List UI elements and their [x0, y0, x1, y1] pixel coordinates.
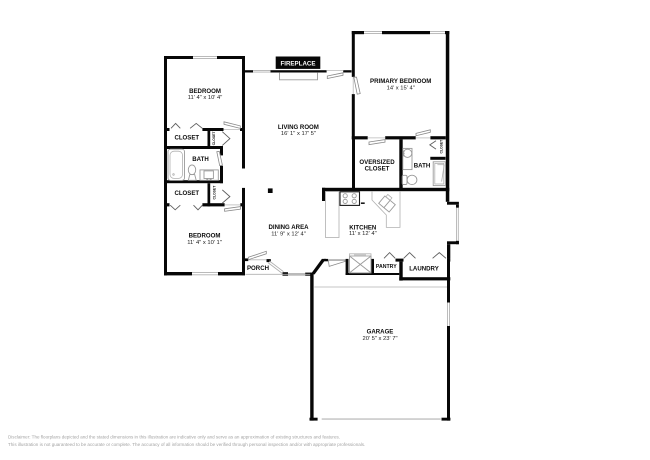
- svg-text:Disclaimer: The floorplans dep: Disclaimer: The floorplans depicted and …: [8, 435, 340, 440]
- svg-text:FIREPLACE: FIREPLACE: [280, 61, 315, 68]
- svg-text:BEDROOM: BEDROOM: [189, 233, 221, 240]
- svg-text:CLOSET: CLOSET: [212, 131, 216, 146]
- svg-text:PORCH: PORCH: [247, 265, 269, 272]
- svg-text:CLOSET: CLOSET: [174, 190, 199, 197]
- svg-text:CLOSET: CLOSET: [440, 139, 444, 154]
- svg-text:LAUNDRY: LAUNDRY: [409, 266, 439, 273]
- svg-text:GARAGE: GARAGE: [367, 329, 394, 336]
- svg-text:LIVING ROOM: LIVING ROOM: [278, 124, 319, 131]
- svg-text:CLOSET: CLOSET: [212, 185, 216, 200]
- svg-text:BEDROOM: BEDROOM: [189, 88, 221, 95]
- svg-text:11' 4" x 10' 1": 11' 4" x 10' 1": [187, 240, 222, 246]
- svg-text:This illustration is not guara: This illustration is not guaranteed to b…: [8, 442, 365, 447]
- svg-text:CLOSET: CLOSET: [174, 135, 199, 142]
- svg-text:11' 4" x 10' 4": 11' 4" x 10' 4": [188, 95, 223, 101]
- svg-text:20' 5" x 23' 7": 20' 5" x 23' 7": [362, 336, 397, 342]
- svg-text:PANTRY: PANTRY: [376, 264, 397, 270]
- svg-text:BATH: BATH: [192, 156, 208, 163]
- svg-text:DINING AREA: DINING AREA: [268, 224, 309, 231]
- svg-text:11' x 12' 4": 11' x 12' 4": [349, 231, 377, 237]
- svg-text:16' 1" x 17' 5": 16' 1" x 17' 5": [281, 131, 316, 137]
- svg-text:14' x 15' 4": 14' x 15' 4": [387, 85, 415, 91]
- svg-text:PRIMARY BEDROOM: PRIMARY BEDROOM: [370, 78, 431, 85]
- svg-text:11' 9" x 12' 4": 11' 9" x 12' 4": [271, 232, 306, 238]
- svg-text:CLOSET: CLOSET: [365, 165, 390, 172]
- svg-text:BATH: BATH: [414, 163, 430, 170]
